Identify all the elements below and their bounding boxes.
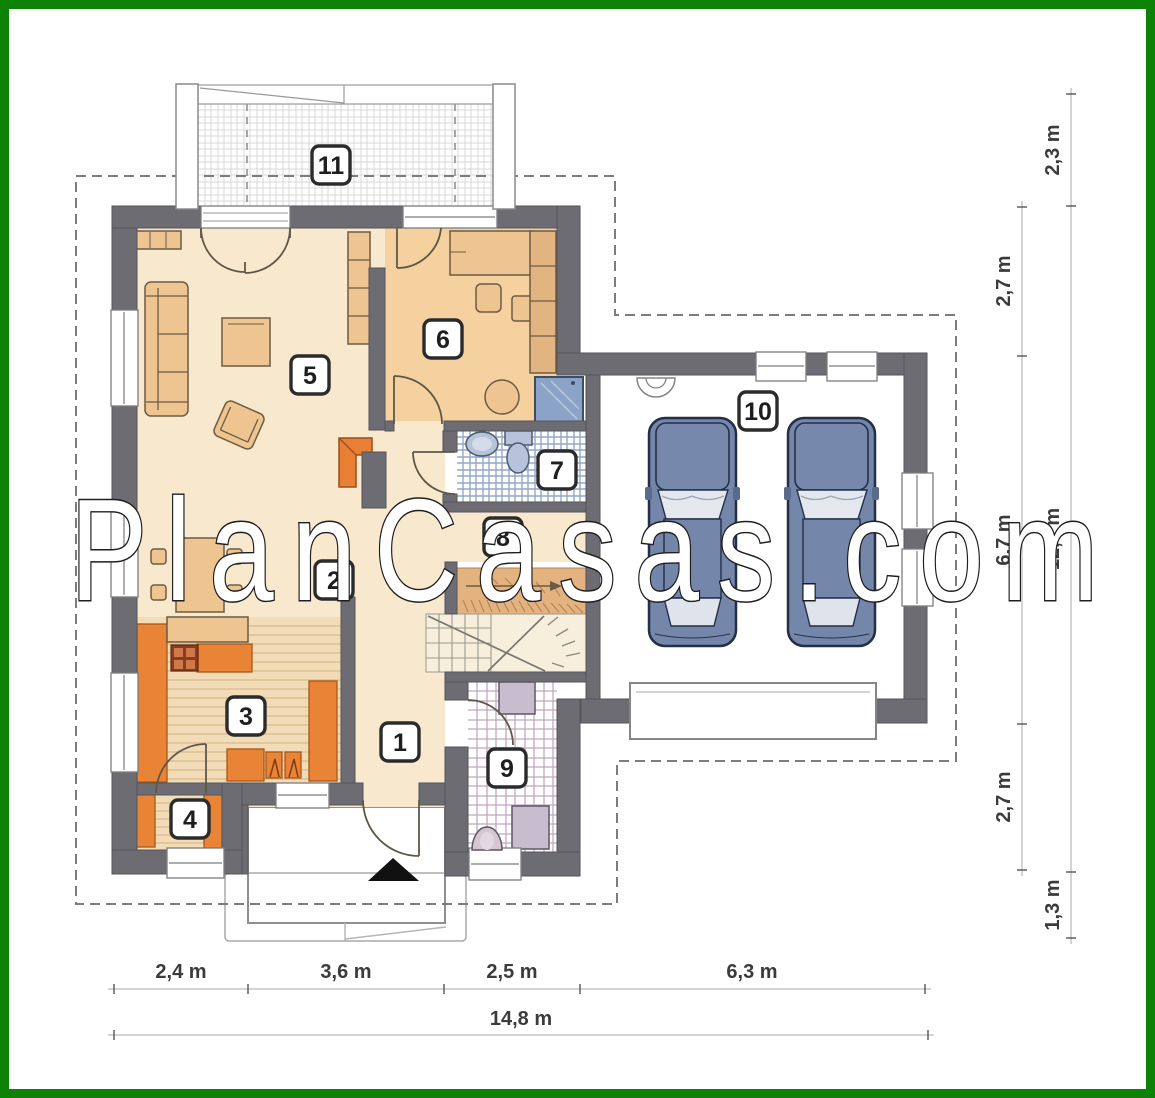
svg-text:2,7 m: 2,7 m [993,771,1015,822]
svg-text:PlanCasas.com: PlanCasas.com [70,469,1116,631]
svg-text:1: 1 [393,729,407,757]
svg-text:5: 5 [303,362,317,390]
svg-text:4: 4 [183,806,197,834]
svg-text:3,6 m: 3,6 m [320,961,371,983]
svg-text:11: 11 [318,152,345,180]
svg-text:3: 3 [239,703,253,731]
svg-text:9: 9 [500,755,514,783]
svg-text:2,3 m: 2,3 m [1042,124,1064,175]
svg-text:6: 6 [436,326,450,354]
svg-text:2,5 m: 2,5 m [486,961,537,983]
svg-text:2,7 m: 2,7 m [993,255,1015,306]
svg-text:2,4 m: 2,4 m [155,961,206,983]
svg-text:14,8 m: 14,8 m [490,1008,552,1030]
svg-text:1,3 m: 1,3 m [1042,879,1064,930]
svg-text:6,3 m: 6,3 m [726,961,777,983]
svg-text:10: 10 [744,398,772,426]
